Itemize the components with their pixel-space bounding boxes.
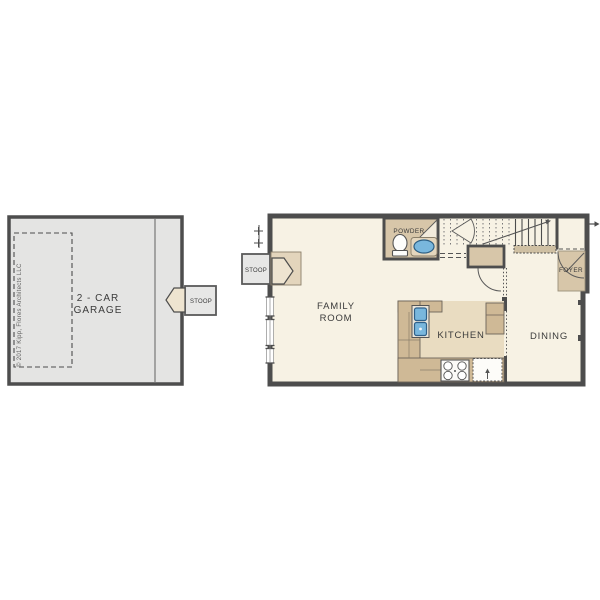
foyer: FOYER [558, 249, 585, 291]
dining-wall-notch [578, 335, 584, 341]
entry-arrow-icon [588, 221, 600, 227]
dining-wall-notch [578, 300, 584, 305]
toilet-icon [393, 235, 408, 257]
floor-plan-canvas: © 2017 Kipp, Flores Architects LLC 2 - C… [0, 0, 600, 600]
stove-icon [441, 360, 469, 381]
sink-icon [411, 238, 437, 257]
floor-plan-drawing: © 2017 Kipp, Flores Architects LLC 2 - C… [0, 0, 600, 600]
stair-side-wall [556, 218, 559, 250]
utility-meter-icon [254, 225, 263, 248]
entry-stoop-label: STOOP [245, 268, 267, 274]
foyer-label: FOYER [559, 267, 583, 274]
dining-label: DINING [530, 331, 568, 342]
kitchen-pantry-cabinet [486, 303, 504, 334]
main-floor-block: STOOP [242, 216, 600, 384]
family-room-windows [266, 297, 275, 363]
family-room-label-line1: FAMILY [317, 301, 355, 312]
garage-label-line2: GARAGE [74, 305, 123, 316]
kitchen-label: KITCHEN [437, 330, 484, 341]
powder-label: POWDER [393, 228, 424, 235]
family-room-label-line2: ROOM [320, 313, 353, 324]
under-stair-closet [468, 246, 504, 267]
powder-room: POWDER [384, 218, 438, 259]
stair-landing [514, 246, 556, 254]
copyright-text: © 2017 Kipp, Flores Architects LLC [16, 263, 23, 367]
kitchen: KITCHEN [398, 301, 504, 382]
garage-label-line1: 2 - CAR [77, 293, 120, 304]
kitchen-sink-icon [412, 306, 429, 338]
garage-block: © 2017 Kipp, Flores Architects LLC 2 - C… [9, 217, 216, 384]
garage-stoop-label: STOOP [190, 299, 212, 305]
refrigerator-space-icon [473, 359, 502, 382]
